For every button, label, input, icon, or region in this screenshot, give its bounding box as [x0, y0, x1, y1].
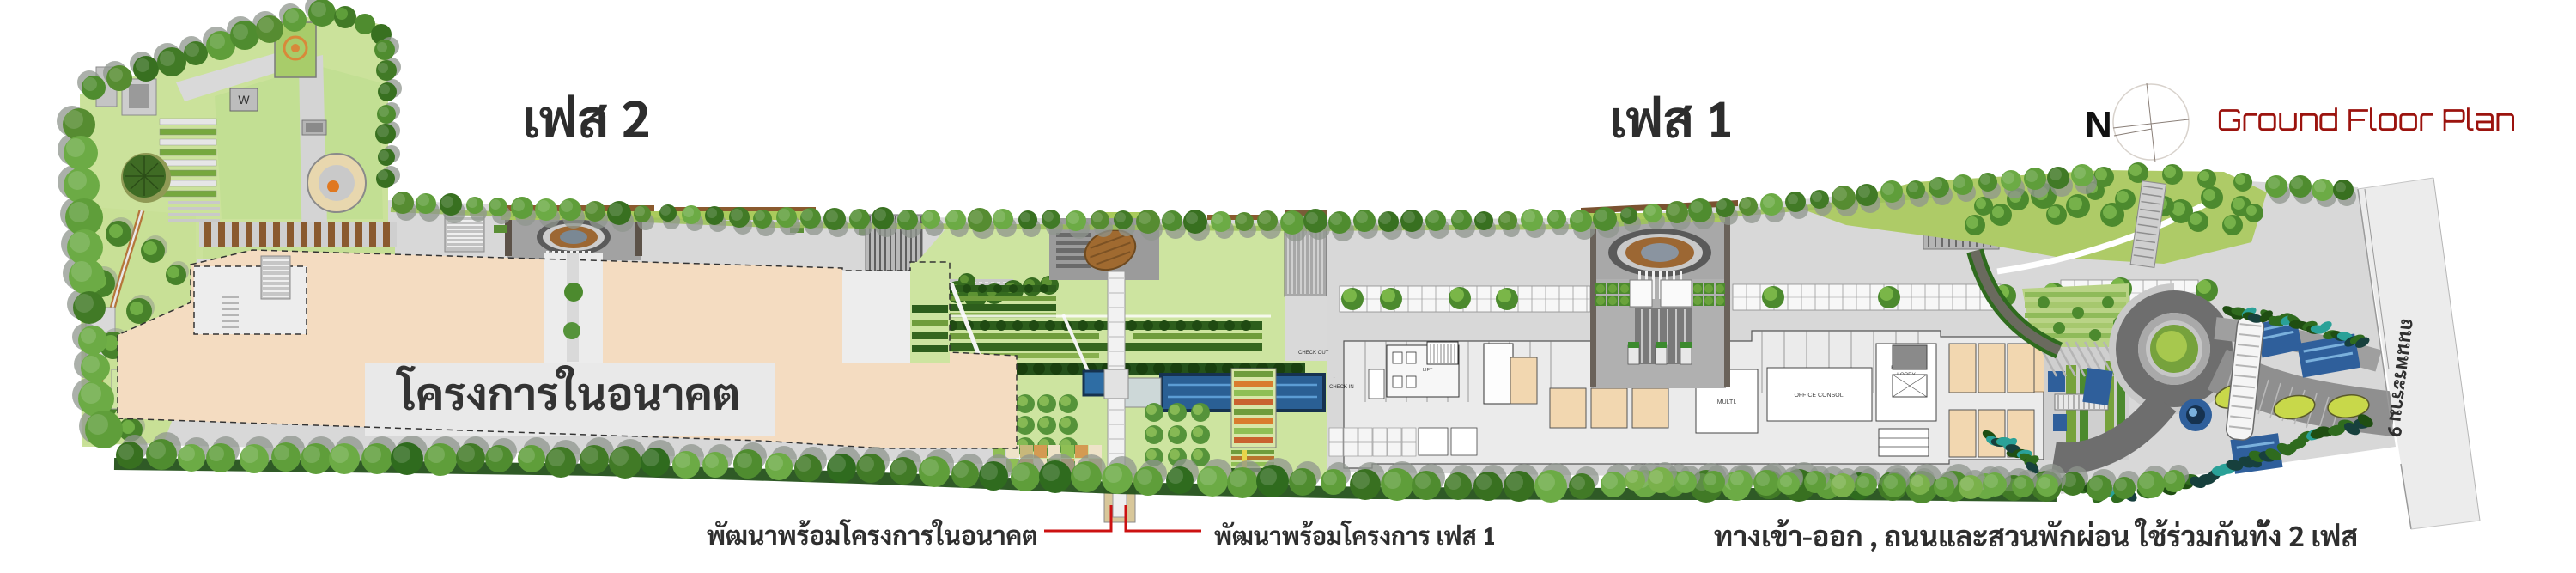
svg-text:N: N	[2085, 104, 2112, 146]
svg-text:OFFICE CONSOL.: OFFICE CONSOL.	[1794, 393, 1844, 399]
svg-text:LIFT: LIFT	[1423, 368, 1433, 373]
svg-text:MULTI.: MULTI.	[1717, 399, 1736, 405]
svg-text:CHECK OUT: CHECK OUT	[1298, 351, 1329, 356]
svg-text:CHECK IN: CHECK IN	[1329, 385, 1354, 390]
svg-text:↑: ↑	[1302, 361, 1304, 366]
svg-text:W: W	[238, 93, 250, 107]
svg-text:↓: ↓	[1333, 375, 1335, 380]
